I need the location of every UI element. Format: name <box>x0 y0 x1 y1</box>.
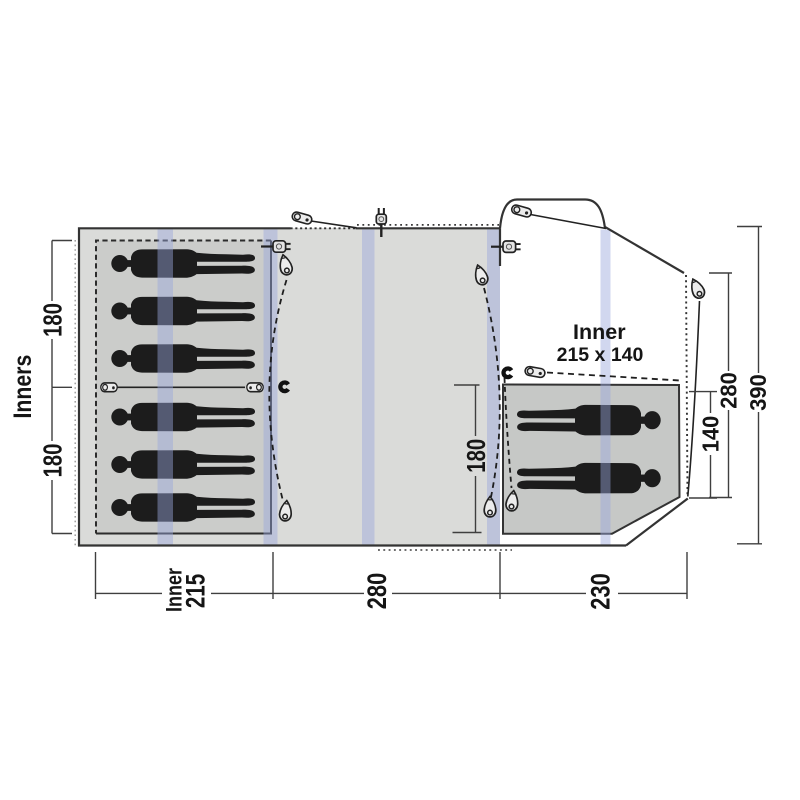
svg-text:215: 215 <box>181 574 211 608</box>
svg-text:280: 280 <box>716 372 742 408</box>
svg-text:215 x 140: 215 x 140 <box>557 344 644 366</box>
svg-text:180: 180 <box>38 303 67 337</box>
svg-text:390: 390 <box>746 374 772 410</box>
svg-text:180: 180 <box>462 439 491 473</box>
svg-text:180: 180 <box>38 444 67 478</box>
svg-text:230: 230 <box>587 573 617 609</box>
svg-text:280: 280 <box>363 573 393 609</box>
svg-text:Inners: Inners <box>8 355 36 419</box>
svg-text:140: 140 <box>698 416 724 452</box>
svg-text:Inner: Inner <box>573 320 626 344</box>
